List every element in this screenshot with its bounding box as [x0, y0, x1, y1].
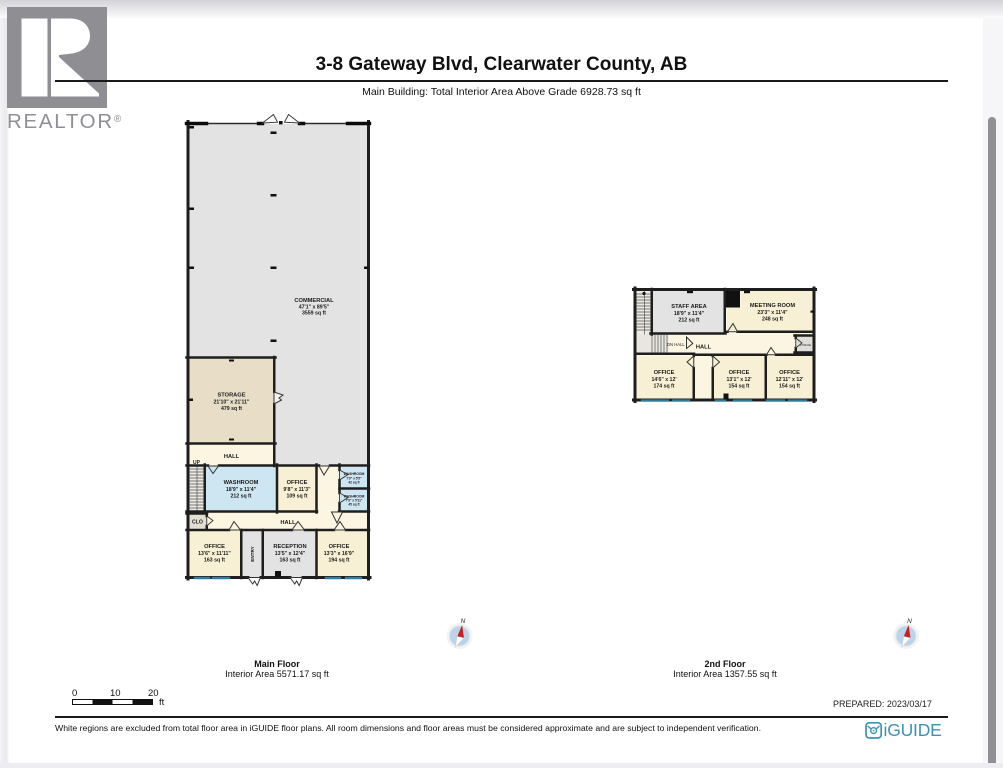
svg-text:18'9" x 11'4": 18'9" x 11'4"	[674, 311, 705, 317]
svg-text:174 sq ft: 174 sq ft	[653, 384, 674, 390]
svg-text:45 sq ft: 45 sq ft	[348, 503, 360, 507]
svg-text:OFFICE: OFFICE	[654, 370, 675, 376]
svg-text:12'11" x 12': 12'11" x 12'	[776, 377, 804, 383]
svg-text:WASHROOM: WASHROOM	[224, 480, 259, 486]
svg-text:N: N	[907, 618, 912, 625]
svg-text:163 sq ft: 163 sq ft	[204, 558, 225, 564]
svg-text:14'6" x 12': 14'6" x 12'	[651, 377, 676, 383]
svg-text:iGUIDE: iGUIDE	[884, 720, 942, 740]
svg-text:OFFICE: OFFICE	[729, 370, 750, 376]
svg-text:18'9" x 11'4": 18'9" x 11'4"	[226, 487, 257, 493]
svg-text:WASHROOM: WASHROOM	[344, 472, 365, 476]
svg-text:194 sq ft: 194 sq ft	[328, 558, 349, 564]
svg-text:212 sq ft: 212 sq ft	[230, 494, 251, 500]
svg-text:42 sq ft: 42 sq ft	[348, 481, 360, 485]
svg-text:OFFICE: OFFICE	[204, 544, 225, 550]
svg-text:STORAGE: STORAGE	[217, 393, 245, 399]
svg-text:13'1" x 12': 13'1" x 12'	[726, 377, 751, 383]
svg-text:CLO: CLO	[192, 520, 203, 526]
svg-text:HALL: HALL	[224, 454, 240, 460]
svg-text:109 sq ft: 109 sq ft	[286, 494, 307, 500]
svg-text:248 sq ft: 248 sq ft	[762, 317, 783, 323]
svg-text:OFFICE: OFFICE	[779, 370, 800, 376]
svg-text:9'8" x 11'3": 9'8" x 11'3"	[283, 487, 311, 493]
svg-text:479 sq ft: 479 sq ft	[221, 406, 242, 412]
svg-text:ENTRY: ENTRY	[250, 546, 255, 561]
svg-text:UP: UP	[193, 460, 201, 466]
svg-text:HALL: HALL	[280, 520, 296, 526]
svg-text:COMMERCIAL: COMMERCIAL	[294, 298, 334, 304]
svg-text:13'3" x 16'9": 13'3" x 16'9"	[324, 551, 355, 557]
svg-text:154 sq ft: 154 sq ft	[779, 384, 800, 390]
svg-text:212 sq ft: 212 sq ft	[678, 318, 699, 324]
svg-text:N: N	[461, 618, 466, 625]
svg-text:21'10" x 21'11": 21'10" x 21'11"	[214, 400, 250, 406]
svg-text:RECEPTION: RECEPTION	[273, 544, 306, 550]
svg-text:23'3" x 11'4": 23'3" x 11'4"	[757, 310, 788, 316]
svg-text:HALL: HALL	[696, 345, 712, 351]
svg-text:OFFICE: OFFICE	[287, 480, 308, 486]
svg-text:DN: DN	[667, 342, 673, 347]
svg-text:MEETING ROOM: MEETING ROOM	[750, 303, 795, 309]
svg-text:OFFICE: OFFICE	[329, 544, 350, 550]
svg-text:154 sq ft: 154 sq ft	[728, 384, 749, 390]
svg-text:13'5" x 12'4": 13'5" x 12'4"	[275, 551, 306, 557]
svg-text:163 sq ft: 163 sq ft	[279, 558, 300, 564]
svg-text:STAFF AREA: STAFF AREA	[671, 304, 706, 310]
svg-text:STORAGE: STORAGE	[800, 344, 812, 347]
svg-text:HALL: HALL	[674, 342, 685, 347]
svg-text:3559 sq ft: 3559 sq ft	[302, 311, 326, 317]
svg-text:13'6" x 11'11": 13'6" x 11'11"	[198, 551, 231, 557]
